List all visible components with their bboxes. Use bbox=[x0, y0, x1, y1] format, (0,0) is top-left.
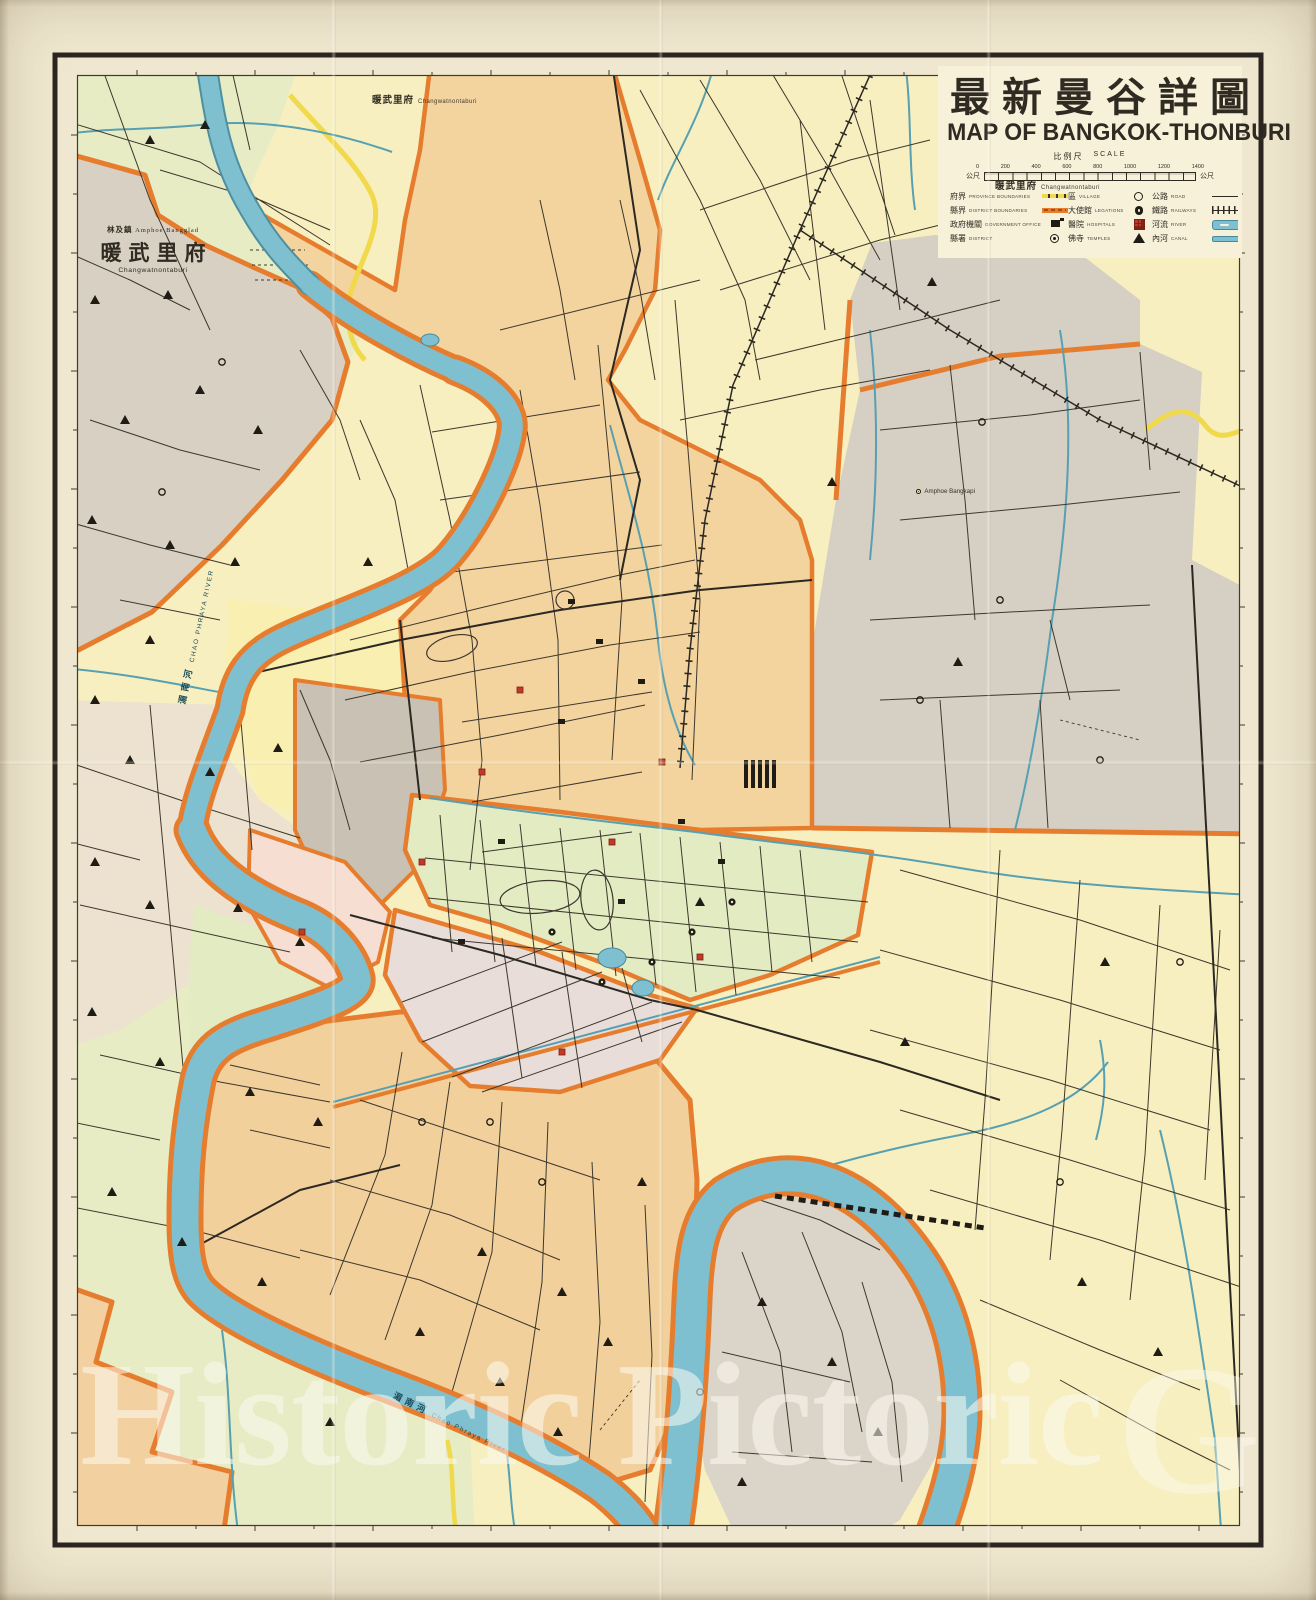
legend-symbol-province-boundary bbox=[1042, 191, 1068, 201]
legend-symbol-river bbox=[1212, 219, 1238, 229]
scale-label-cn: 比例尺 bbox=[1054, 151, 1084, 162]
legend-symbol-hospital bbox=[1126, 219, 1152, 229]
legend: 府界PROVINCE BOUNDARIES 縣界DISTRICT BOUNDAR… bbox=[950, 189, 1232, 245]
legend-symbol-district-boundary bbox=[1042, 205, 1068, 215]
legend-symbol-road bbox=[1212, 191, 1238, 201]
map-sheet: 最新曼谷詳圖 MAP OF BANGKOK-THONBURI 比例尺 SCALE… bbox=[0, 0, 1316, 1600]
map-title-chinese: 最新曼谷詳圖 bbox=[938, 76, 1242, 120]
legend-symbol-village bbox=[1126, 191, 1152, 201]
map-title-english: MAP OF BANGKOK-THONBURI bbox=[947, 120, 1233, 146]
legend-symbol-legation bbox=[1127, 205, 1152, 215]
legend-symbol-railway bbox=[1212, 205, 1238, 215]
legend-symbol-temple bbox=[1126, 233, 1152, 243]
scale-unit-right: 公尺 bbox=[1200, 171, 1214, 181]
scale-bar-graphic bbox=[984, 172, 1196, 181]
legend-symbol-district-office bbox=[1042, 233, 1068, 243]
scale-label-en: SCALE bbox=[1094, 151, 1127, 162]
legend-symbol-canal bbox=[1212, 233, 1238, 243]
title-cartouche: 最新曼谷詳圖 MAP OF BANGKOK-THONBURI 比例尺 SCALE… bbox=[938, 66, 1242, 258]
scale-tick-numbers: 0200 400600 8001000 12001400 bbox=[976, 164, 1204, 170]
scale-unit-left: 公尺 bbox=[966, 171, 980, 181]
scale-bar: 比例尺 SCALE 0200 400600 8001000 12001400 公… bbox=[938, 151, 1242, 181]
legend-symbol-government-office bbox=[1044, 219, 1068, 229]
